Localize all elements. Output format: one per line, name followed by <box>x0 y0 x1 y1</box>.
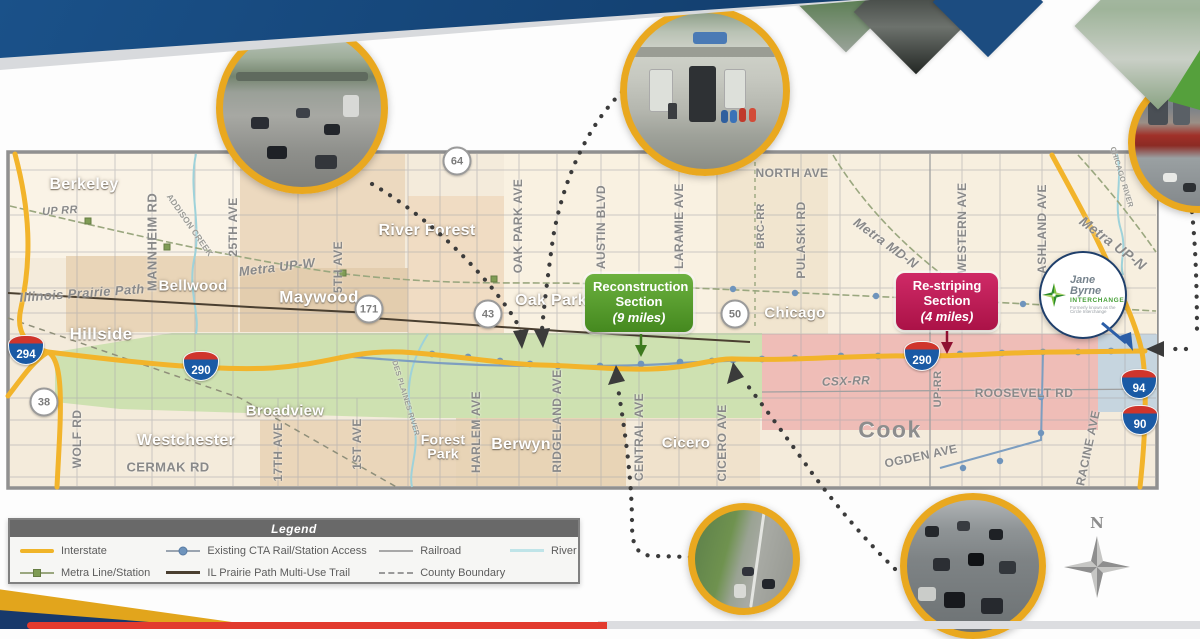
legend-swatch-railroad <box>379 550 413 552</box>
vehicle <box>742 567 754 576</box>
newspaper-box <box>730 110 737 123</box>
truck <box>734 584 746 598</box>
legend-label: Railroad <box>420 545 461 557</box>
vehicle <box>989 529 1003 540</box>
vehicle <box>981 598 1003 614</box>
legend-swatch-river <box>510 549 544 552</box>
compass-rose: N <box>1057 514 1137 606</box>
legend-item-railroad: Railroad <box>379 542 510 559</box>
station-sign <box>693 32 727 44</box>
video-progress-track[interactable] <box>598 621 1200 629</box>
legend-item-metra-line-station: Metra Line/Station <box>20 564 166 581</box>
legend-item-existing-cta-rail-station-access: Existing CTA Rail/Station Access <box>166 542 379 559</box>
vehicle <box>762 579 775 589</box>
legend-item-county-boundary: County Boundary <box>379 564 510 581</box>
legend-swatch-county <box>379 572 413 574</box>
vehicle <box>944 592 965 608</box>
sign-gantry <box>236 72 369 81</box>
legend-swatch-cta <box>166 550 200 552</box>
legend: Legend InterstateMetra Line/Station Exis… <box>8 518 580 584</box>
legend-item-il-prairie-path-multi-use-trail: IL Prairie Path Multi-Use Trail <box>166 564 379 581</box>
legend-label: River <box>551 545 577 557</box>
legend-label: County Boundary <box>420 567 505 579</box>
photo-circle-cta-station <box>620 6 790 176</box>
vehicle <box>267 146 287 159</box>
truck <box>343 95 359 117</box>
vehicle <box>251 117 269 129</box>
legend-item-interstate: Interstate <box>20 542 166 559</box>
vehicle <box>918 587 936 601</box>
vehicle <box>1163 173 1177 182</box>
legend-swatch-trail <box>166 571 200 574</box>
video-progress-bar[interactable] <box>27 622 607 629</box>
vehicle <box>957 521 970 531</box>
legend-swatch-interstate <box>20 549 54 553</box>
vehicle <box>296 108 310 118</box>
newspaper-box <box>721 110 728 123</box>
newspaper-box <box>749 108 756 122</box>
legend-item-river: River <box>510 542 570 559</box>
legend-title: Legend <box>10 520 578 537</box>
legend-label: Interstate <box>61 545 107 557</box>
vehicle <box>968 553 984 566</box>
callout-arrows <box>635 323 1133 357</box>
vehicle <box>1183 183 1196 192</box>
newspaper-box <box>739 108 746 122</box>
compass-star-icon <box>1062 532 1132 602</box>
vehicle <box>933 558 950 571</box>
station-roof <box>633 47 777 56</box>
legend-swatch-metra <box>20 572 54 574</box>
lane-line <box>749 510 766 607</box>
photo-circle-congested-traffic <box>900 493 1046 639</box>
station-window <box>724 69 746 108</box>
vehicle <box>324 124 340 135</box>
vehicle <box>315 155 337 169</box>
legend-label: Existing CTA Rail/Station Access <box>207 545 366 557</box>
photo-circle-expressway-trees <box>688 503 800 615</box>
legend-label: Metra Line/Station <box>61 567 150 579</box>
trash-can <box>668 103 677 119</box>
legend-label: IL Prairie Path Multi-Use Trail <box>207 567 350 579</box>
slide-canvas: { "map": { "cities": [ {"t":"Berkeley","… <box>0 0 1200 629</box>
vehicle <box>999 561 1016 574</box>
station-doorway <box>689 66 716 122</box>
compass-north-label: N <box>1057 514 1137 532</box>
vehicle <box>925 526 939 537</box>
